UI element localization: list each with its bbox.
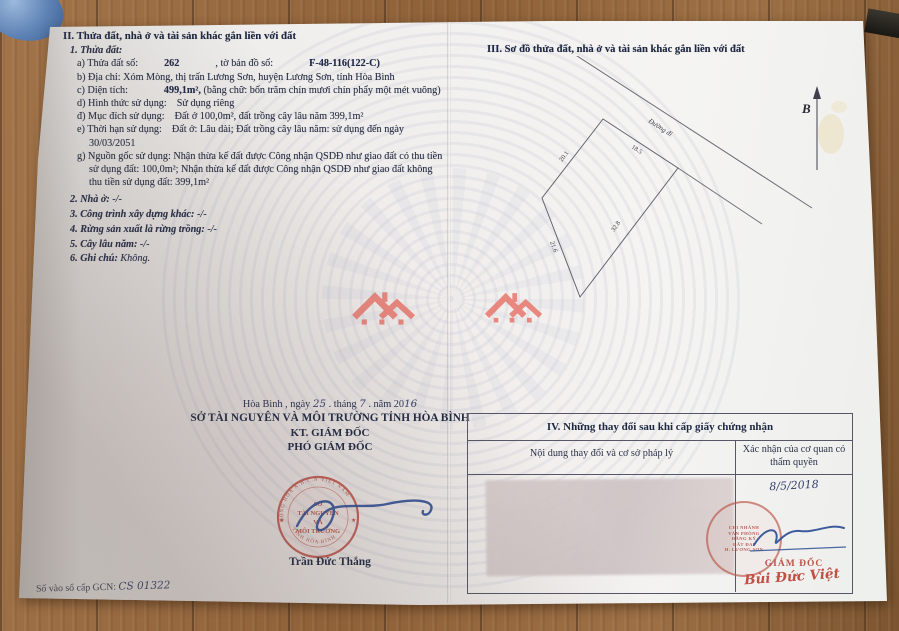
section-iv-body: 8/5/2018 CHI NHÁNH VĂN PHÒNG ĐĂNG KÝ ĐẤT…: [468, 475, 852, 592]
certificate-paper: II. Thửa đất, nhà ở và tài sản khác gắn …: [0, 0, 899, 631]
edge-length-left: 21.6: [548, 240, 559, 254]
field-use-purpose-row: đ) Mục đích sử dụng:Đất ở 100,0m², đất t…: [63, 110, 477, 123]
item-perennial-label: 5. Cây lâu năm:: [70, 239, 137, 250]
item-forest-value: -/-: [207, 224, 217, 235]
paper-stain: [818, 114, 844, 154]
map-sheet-value: F-48-116(122-C): [309, 58, 380, 69]
item-perennial-value: -/-: [140, 239, 150, 250]
subsection-1-label: 1. Thửa đất:: [63, 44, 477, 57]
section-iv-header-row: Nội dung thay đổi và cơ sở pháp lý Xác n…: [468, 441, 852, 475]
deputy-director-label: PHÓ GIÁM ĐỐC: [160, 441, 500, 453]
handwritten-day: 25: [313, 398, 326, 410]
field-use-form-row: d) Hình thức sử dụng:Sử dụng riêng: [63, 97, 477, 110]
area-value: 499,1m²,: [164, 85, 201, 96]
use-term-value: Đất ở: Lâu dài; Đất trồng cây lâu năm: s…: [172, 124, 404, 135]
field-origin-row-1: g) Nguồn gốc sử dụng: Nhận thừa kế đất đ…: [63, 150, 477, 163]
parcel-boundary: [542, 119, 678, 297]
gcn-book-number-value: CS 01322: [118, 579, 170, 592]
date-mid1: . tháng: [329, 399, 357, 410]
field-parcel-number-row: a) Thửa đất số:262, tờ bản đồ số:F-48-11…: [63, 57, 477, 70]
director-signature: [748, 515, 850, 559]
item-forest-label: 4. Rừng sản xuất là rừng trồng:: [70, 224, 205, 235]
item-house-row: 2. Nhà ở: -/-: [63, 193, 477, 206]
map-sheet-label: , tờ bản đồ số:: [215, 58, 273, 69]
item-note-value: Không.: [120, 253, 150, 264]
item-forest-row: 4. Rừng sản xuất là rừng trồng: -/-: [63, 223, 477, 236]
item-construction-label: 3. Công trình xây dựng khác:: [70, 209, 194, 220]
road-label: Đường đi: [646, 116, 674, 138]
paper-shadow-wrap: II. Thửa đất, nhà ở và tài sản khác gắn …: [0, 0, 899, 631]
use-term-label: e) Thời hạn sử dụng:: [77, 124, 162, 135]
use-form-value: Sử dụng riêng: [177, 98, 235, 109]
signer-name-text: Trần Đức Thắng: [289, 556, 371, 568]
gcn-book-number: Số vào sổ cấp GCN: CS 01322: [36, 579, 171, 594]
section-iv-title: IV. Những thay đổi sau khi cấp giấy chứn…: [468, 414, 852, 441]
date-mid2: . năm 20: [368, 399, 404, 410]
house-watermark-icon: [483, 288, 543, 325]
issuing-signature-block: Hòa Bình , ngày 25 . tháng 7 . năm 2016 …: [160, 398, 500, 453]
issuing-authority: SỞ TÀI NGUYÊN VÀ MÔI TRƯỜNG TỈNH HÒA BÌN…: [160, 412, 500, 424]
gcn-book-number-label: Số vào sổ cấp GCN:: [36, 582, 116, 595]
handwritten-entry-date: 8/5/2018: [738, 476, 851, 495]
item-perennial-row: 5. Cây lâu năm: -/-: [63, 238, 477, 251]
section-ii: II. Thửa đất, nhà ở và tài sản khác gắn …: [63, 30, 477, 265]
col-change-content-header: Nội dung thay đổi và cơ sở pháp lý: [468, 441, 736, 474]
field-origin-row-3: thu tiền sử dụng đất: 399,1m²: [63, 176, 477, 189]
item-construction-value: -/-: [197, 209, 207, 220]
parcel-number-value: 262: [164, 58, 179, 69]
parcel-number-label: a) Thửa đất số:: [77, 58, 138, 69]
issue-date-line: Hòa Bình , ngày 25 . tháng 7 . năm 2016: [160, 398, 500, 410]
use-purpose-label: đ) Mục đích sử dụng:: [77, 111, 165, 122]
use-term-date: 30/03/2051: [63, 137, 477, 150]
paper-stain-small: [831, 101, 847, 113]
section-iv-table: IV. Những thay đổi sau khi cấp giấy chứn…: [467, 413, 853, 594]
signer-name: Trần Đức Thắng: [160, 552, 500, 570]
section-ii-heading: II. Thửa đất, nhà ở và tài sản khác gắn …: [63, 30, 477, 43]
item-note-label: 6. Ghi chú:: [70, 253, 118, 264]
redacted-entry-area: [486, 478, 735, 577]
area-label: c) Diện tích:: [77, 85, 128, 96]
section-iii-heading: III. Sơ đồ thửa đất, nhà ở và tài sản kh…: [487, 44, 887, 55]
deputy-director-signature: [283, 480, 448, 544]
kt-director-label: KT. GIÁM ĐỐC: [160, 427, 500, 439]
item-note-row: 6. Ghi chú: Không.: [63, 252, 477, 265]
item-house-value: -/-: [112, 194, 122, 205]
handwritten-month: 7: [359, 398, 366, 410]
field-address-row: b) Địa chỉ: Xóm Mòng, thị trấn Lương Sơn…: [63, 71, 477, 84]
area-in-words: (bằng chữ: bốn trăm chín mươi chín phẩy …: [203, 85, 440, 96]
edge-length-top-left: 20.1: [558, 150, 570, 163]
date-prefix: Hòa Bình , ngày: [243, 399, 311, 410]
road-line-lower: [678, 168, 762, 224]
col-authority-confirm-header: Xác nhận của cơ quan có thẩm quyền: [736, 441, 852, 474]
use-form-label: d) Hình thức sử dụng:: [77, 98, 167, 109]
use-purpose-value: Đất ở 100,0m², đất trồng cây lâu năm 399…: [175, 111, 364, 122]
handwritten-year: 16: [404, 398, 417, 410]
field-use-term-row: e) Thời hạn sử dụng:Đất ở: Lâu dài; Đất …: [63, 123, 477, 136]
house-watermark-icon: [350, 287, 416, 327]
item-house-label: 2. Nhà ở:: [70, 194, 110, 205]
item-construction-row: 3. Công trình xây dựng khác: -/-: [63, 208, 477, 221]
north-label: B: [801, 101, 811, 116]
field-origin-row-2: sử dụng đất: 100,0m²; Nhận thừa kế đất đ…: [63, 163, 477, 176]
field-area-row: c) Diện tích:499,1m², (bằng chữ: bốn tră…: [63, 84, 477, 97]
north-arrow-head: [813, 86, 821, 99]
